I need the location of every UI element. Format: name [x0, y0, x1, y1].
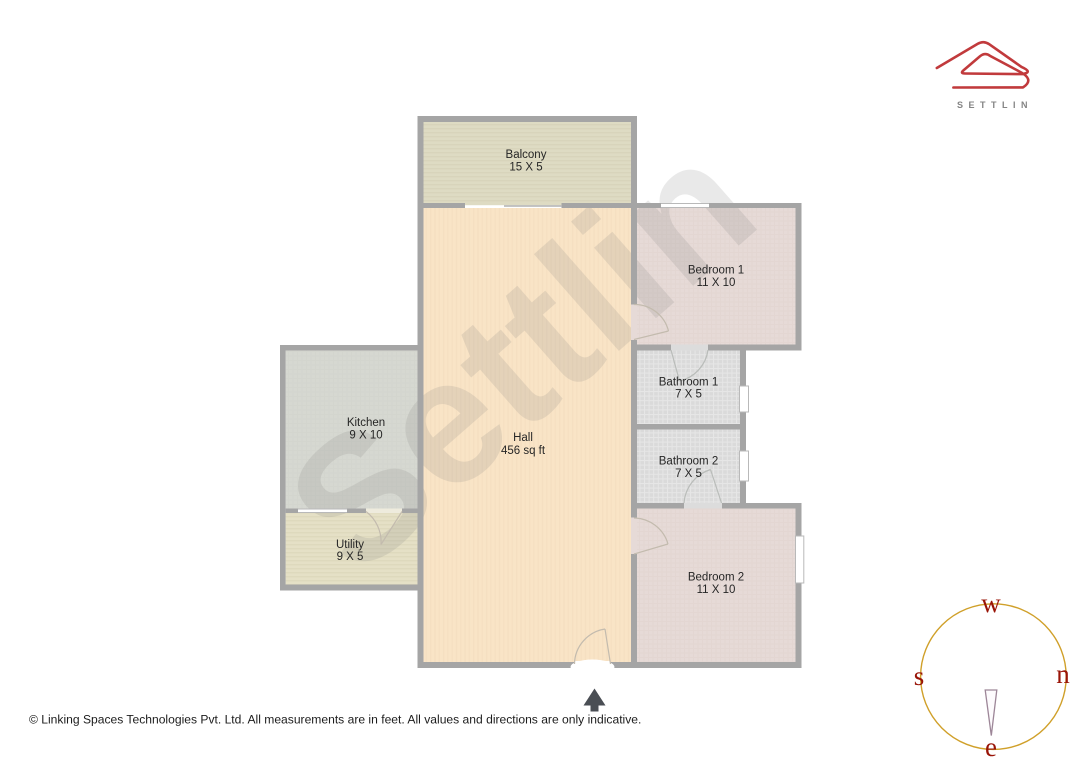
svg-text:© Linking Spaces Technologies: © Linking Spaces Technologies Pvt. Ltd. …: [29, 713, 641, 727]
svg-text:Utility: Utility: [336, 539, 364, 551]
svg-text:Hall: Hall: [513, 432, 533, 444]
svg-text:11 X 10: 11 X 10: [697, 584, 736, 596]
svg-text:w: w: [981, 588, 1001, 618]
svg-text:n: n: [1056, 659, 1070, 689]
svg-text:11 X 10: 11 X 10: [697, 277, 736, 289]
svg-text:9 X 10: 9 X 10: [349, 429, 382, 441]
svg-text:7 X 5: 7 X 5: [675, 389, 702, 401]
svg-text:Bedroom 1: Bedroom 1: [688, 265, 744, 277]
svg-text:SETTLIN: SETTLIN: [957, 100, 1033, 110]
svg-text:Balcony: Balcony: [506, 149, 547, 161]
svg-text:7 X 5: 7 X 5: [675, 468, 702, 480]
svg-text:15 X 5: 15 X 5: [509, 162, 542, 174]
svg-text:Bathroom 2: Bathroom 2: [659, 456, 718, 468]
svg-text:456 sq ft: 456 sq ft: [501, 445, 546, 457]
svg-text:Kitchen: Kitchen: [347, 417, 385, 429]
svg-text:e: e: [985, 732, 997, 762]
svg-text:s: s: [914, 661, 925, 691]
svg-text:Bathroom 1: Bathroom 1: [659, 377, 718, 389]
svg-text:Bedroom 2: Bedroom 2: [688, 572, 744, 584]
svg-text:9 X 5: 9 X 5: [337, 551, 364, 563]
